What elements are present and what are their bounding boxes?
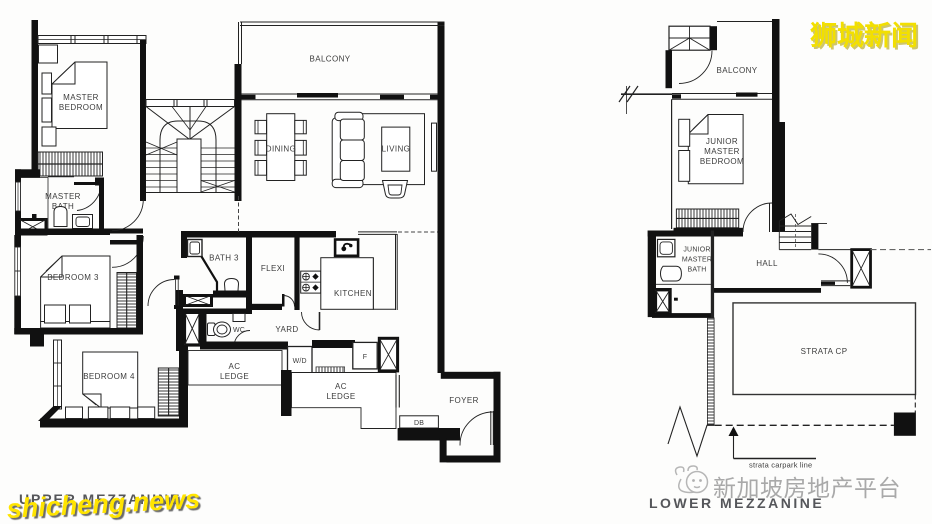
svg-text:DINING: DINING: [266, 145, 296, 154]
svg-text:BEDROOM: BEDROOM: [700, 157, 744, 166]
svg-text:AC: AC: [229, 362, 241, 371]
svg-text:BATH 3: BATH 3: [209, 254, 239, 263]
svg-text:MASTER: MASTER: [63, 93, 99, 102]
svg-text:FLEXI: FLEXI: [261, 264, 285, 273]
svg-text:BALCONY: BALCONY: [309, 55, 350, 64]
svg-text:YARD: YARD: [275, 325, 298, 334]
svg-text:BALCONY: BALCONY: [716, 66, 757, 75]
svg-text:MASTER: MASTER: [682, 257, 712, 264]
svg-text:JUNIOR: JUNIOR: [706, 137, 738, 146]
svg-text:WC: WC: [233, 327, 245, 334]
svg-text:DB: DB: [414, 420, 424, 427]
svg-text:BATH: BATH: [688, 267, 707, 274]
svg-text:KITCHEN: KITCHEN: [334, 289, 372, 298]
svg-text:STRATA CP: STRATA CP: [801, 347, 848, 356]
svg-text:BEDROOM 4: BEDROOM 4: [83, 372, 135, 381]
svg-text:HALL: HALL: [756, 259, 778, 268]
svg-text:LIVING: LIVING: [382, 145, 411, 154]
svg-text:BEDROOM: BEDROOM: [59, 103, 103, 112]
svg-text:AC: AC: [335, 382, 347, 391]
svg-text:W/D: W/D: [293, 358, 307, 365]
svg-text:BEDROOM 3: BEDROOM 3: [47, 273, 99, 282]
svg-text:JUNIOR: JUNIOR: [683, 247, 710, 254]
svg-text:FOYER: FOYER: [449, 396, 479, 405]
svg-text:LEDGE: LEDGE: [326, 392, 355, 401]
svg-text:LEDGE: LEDGE: [220, 372, 249, 381]
svg-text:MASTER: MASTER: [704, 147, 740, 156]
svg-text:F: F: [363, 354, 367, 361]
svg-text:MASTER: MASTER: [45, 192, 81, 201]
